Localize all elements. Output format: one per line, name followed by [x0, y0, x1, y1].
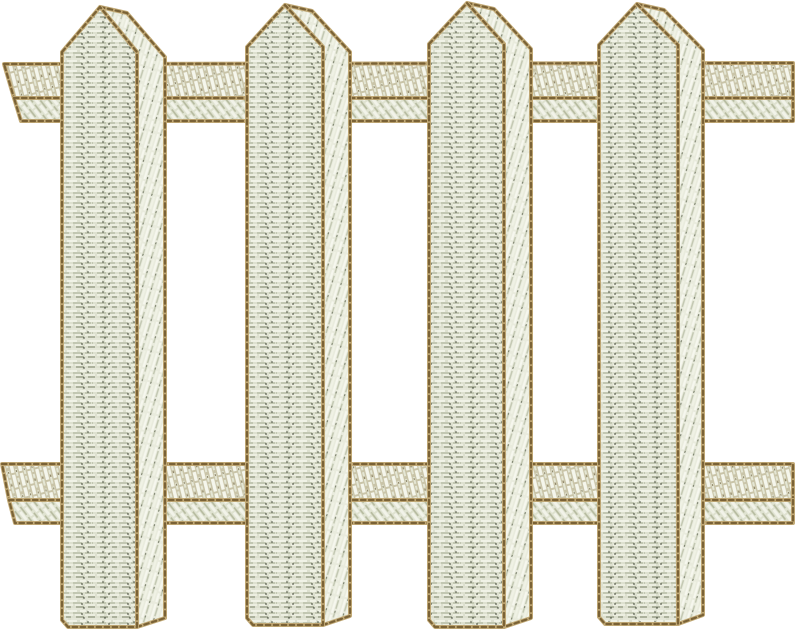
picket-2-front-face [247, 5, 323, 625]
picket-3-front-face [429, 3, 504, 627]
picket-4-front-face [599, 4, 678, 624]
picket-fence-embroidery [0, 0, 800, 635]
picket-1-front-face [62, 7, 137, 627]
embroidery-canvas [0, 0, 800, 635]
